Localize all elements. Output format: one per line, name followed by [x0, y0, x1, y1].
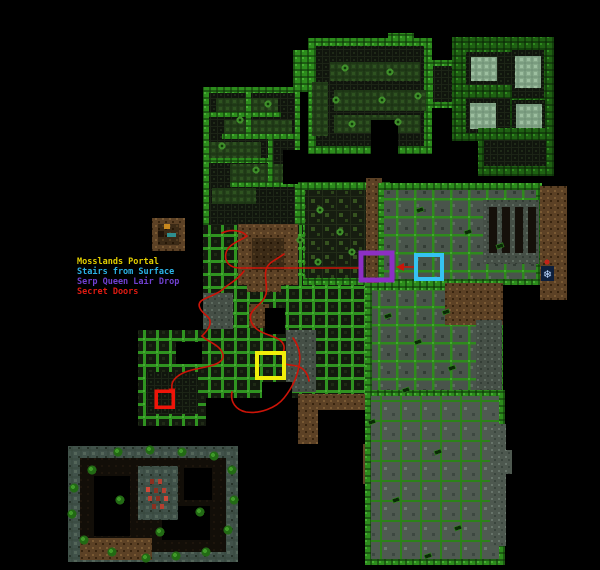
map-region-black [262, 382, 292, 410]
map-region-#c8881e [164, 224, 170, 229]
rune-icon [152, 504, 156, 509]
map-region-wall [246, 93, 251, 135]
map-region-dirt [80, 538, 152, 560]
map-region-wall [388, 33, 414, 41]
red-dot-icon [545, 260, 550, 265]
map-region-dirt [306, 394, 368, 410]
bush-highlight [147, 447, 151, 451]
moss-dot-core [317, 261, 320, 264]
rune-icon [154, 488, 158, 493]
bush-highlight [81, 537, 85, 541]
map-region-fmossL [515, 56, 541, 88]
map-region-wall [222, 134, 295, 139]
moss-dot-core [417, 95, 420, 98]
moss-dot-core [299, 239, 302, 242]
map-region-froom [209, 142, 261, 160]
map-region-#2e8f8f [167, 233, 176, 237]
rune-icon [148, 496, 152, 501]
bush-highlight [115, 449, 119, 453]
bush-highlight [117, 497, 121, 501]
map-region-fmossL [470, 103, 496, 129]
map-region-black [94, 476, 130, 536]
map-legend: Mosslands Portal Stairs from Surface Ser… [77, 257, 179, 297]
map-region-fslate [503, 450, 512, 474]
moss-dot-core [344, 67, 347, 70]
map-region-dirt [445, 283, 503, 325]
rune-icon [146, 487, 150, 492]
bush-highlight [211, 453, 215, 457]
legend-mosslands-portal: Mosslands Portal [77, 257, 179, 267]
map-region-#201409 [158, 231, 164, 237]
bush-highlight [69, 511, 73, 515]
map-region-wall [209, 112, 281, 117]
bush-highlight [197, 509, 201, 513]
bush-highlight [225, 527, 229, 531]
moss-dot-core [389, 71, 392, 74]
map-region-fgray [476, 320, 502, 396]
map-region-fdark [484, 140, 546, 166]
moss-dot-core [267, 103, 270, 106]
map-region-wall [209, 158, 269, 163]
moss-dot-core [255, 169, 258, 172]
map-region-fmossL [471, 57, 497, 81]
map-region-black [283, 150, 300, 184]
map-region-pillar [515, 207, 523, 253]
map-region-pillar [489, 207, 497, 253]
rune-icon [160, 504, 164, 509]
map-region-fgray [203, 293, 233, 329]
map-region-black [318, 410, 366, 444]
legend-stairs-from-surface: Stairs from Surface [77, 267, 179, 277]
moss-dot-core [351, 251, 354, 254]
map-region-smaze [371, 396, 499, 559]
dungeon-map-viewport: ❄ Mosslands Portal Stairs from Surface S… [0, 0, 600, 570]
map-region-dirt [247, 276, 281, 292]
rune-icon [164, 496, 168, 501]
map-region-black [265, 308, 285, 334]
map-region-black [184, 468, 212, 500]
bush-highlight [229, 467, 233, 471]
rune-icon [162, 488, 166, 493]
map-region-fslate [490, 424, 506, 546]
moss-dot-core [239, 119, 242, 122]
map-region-black [176, 342, 202, 364]
map-region-froom [230, 164, 292, 184]
rune-icon [158, 479, 162, 484]
legend-secret-doors: Secret Doors [77, 287, 179, 297]
map-region-black [371, 120, 398, 154]
bush-highlight [231, 497, 235, 501]
bush-highlight [179, 449, 183, 453]
moss-dot-core [319, 209, 322, 212]
map-region-dirt [540, 186, 567, 300]
map-region-fmossL [516, 104, 542, 130]
bush-highlight [157, 529, 161, 533]
snowflake-icon: ❄ [543, 268, 552, 281]
moss-dot-core [221, 145, 224, 148]
legend-serp-queen-lair-drop: Serp Queen Lair Drop [77, 277, 179, 287]
map-regions [68, 33, 567, 565]
rune-icon [156, 496, 160, 501]
bush-highlight [203, 549, 207, 553]
map-region-pillar [528, 207, 536, 253]
map-region-froom [224, 120, 292, 136]
moss-dot-core [397, 121, 400, 124]
moss-dot-core [381, 99, 384, 102]
rune-icon [150, 479, 154, 484]
map-region-froom [212, 188, 256, 204]
moss-dot-core [351, 123, 354, 126]
moss-dot-core [339, 231, 342, 234]
moss-dot-core [335, 99, 338, 102]
bush-highlight [109, 549, 113, 553]
bush-highlight [173, 553, 177, 557]
bush-highlight [71, 485, 75, 489]
map-region-froom [312, 82, 328, 136]
bush-highlight [143, 555, 147, 559]
bush-highlight [89, 467, 93, 471]
map-region-wall [268, 138, 273, 182]
